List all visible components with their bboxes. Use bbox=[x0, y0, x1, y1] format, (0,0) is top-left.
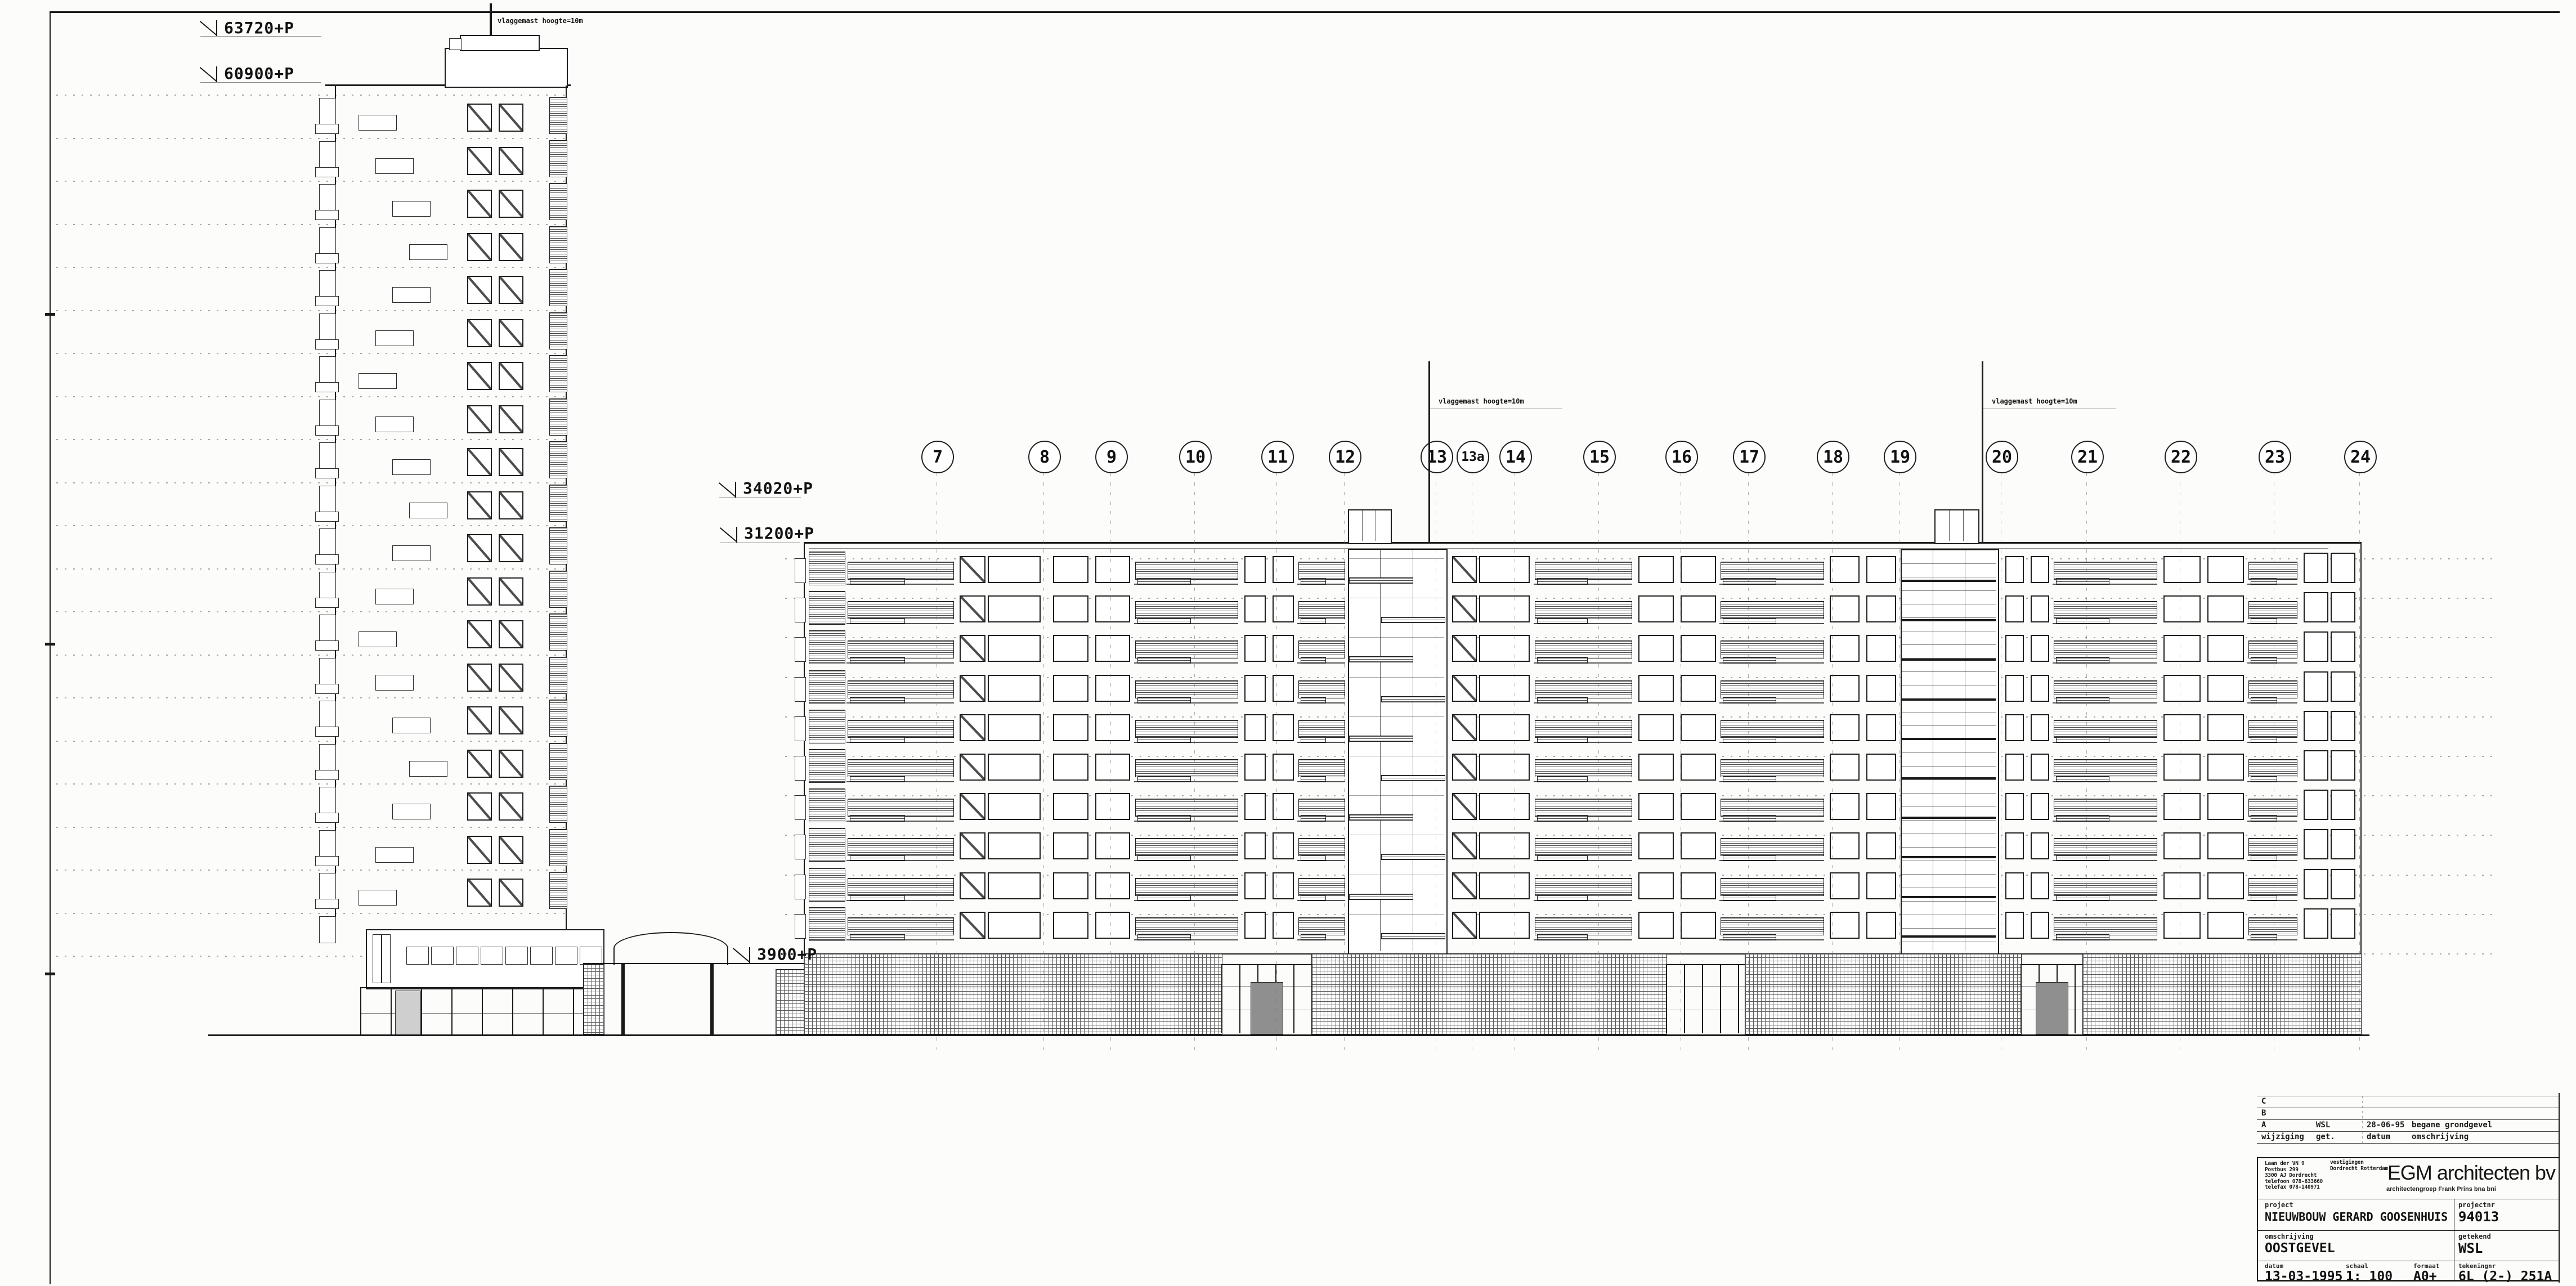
entrance-mullion bbox=[2021, 964, 2022, 1033]
stair-core-slab bbox=[1902, 856, 1996, 858]
stair-core-mullion bbox=[1413, 550, 1413, 951]
balcony-slab bbox=[1297, 742, 1345, 743]
casement-window bbox=[1452, 556, 1477, 583]
tower-window bbox=[467, 836, 492, 864]
revision-column-divider bbox=[2362, 1096, 2363, 1143]
flag-mast bbox=[1982, 361, 1983, 542]
window bbox=[2005, 832, 2024, 859]
window bbox=[1273, 556, 1294, 583]
casement-window bbox=[960, 714, 985, 741]
tower-window bbox=[499, 405, 523, 433]
balcony-slab bbox=[1719, 821, 1824, 822]
titleblock-border-left bbox=[2257, 1157, 2258, 1281]
tower-balcony bbox=[549, 355, 567, 392]
window bbox=[2163, 635, 2201, 662]
firm-name: EGM architecten bv bbox=[2387, 1161, 2555, 1185]
balcony-railing bbox=[1135, 759, 1238, 777]
stair-core-line bbox=[1349, 914, 1444, 915]
grid-bubble: 9 bbox=[1095, 441, 1128, 473]
balcony-railing bbox=[2054, 640, 2157, 658]
annex-window bbox=[431, 947, 454, 965]
window bbox=[1681, 714, 1716, 741]
balcony-railing bbox=[1535, 720, 1632, 738]
window bbox=[1830, 714, 1860, 741]
end-balcony bbox=[809, 907, 845, 941]
window bbox=[1681, 832, 1716, 859]
balcony-slab bbox=[2053, 900, 2157, 901]
window bbox=[1830, 595, 1860, 622]
tower-edge-box bbox=[319, 873, 336, 900]
projectnr-value: 94013 bbox=[2458, 1209, 2499, 1225]
tower-window bbox=[467, 276, 492, 304]
fold-mark bbox=[45, 313, 55, 316]
window bbox=[1830, 675, 1860, 702]
tower-edge-box bbox=[319, 916, 336, 943]
tower-edge-box bbox=[319, 356, 336, 383]
grid-line bbox=[1899, 473, 1899, 1051]
balcony-slab bbox=[1297, 623, 1345, 624]
level-line bbox=[56, 95, 571, 96]
entrance-mullion bbox=[1738, 964, 1739, 1033]
window bbox=[1479, 556, 1530, 583]
annex-pier bbox=[382, 934, 391, 983]
tower-edge-box-base bbox=[315, 512, 339, 522]
balcony-slab bbox=[2053, 781, 2157, 782]
window bbox=[2207, 595, 2245, 622]
balcony-slab bbox=[1534, 584, 1632, 585]
tower-window bbox=[467, 491, 492, 519]
balcony-slab bbox=[2247, 860, 2297, 861]
balcony-slab bbox=[1719, 860, 1824, 861]
balcony-railing bbox=[2248, 680, 2297, 698]
balcony-railing bbox=[1298, 680, 1345, 698]
entrance-mullion bbox=[1684, 964, 1685, 1033]
grid-bubble: 19 bbox=[1884, 441, 1916, 473]
window bbox=[988, 912, 1041, 939]
window bbox=[2005, 754, 2024, 781]
grid-line bbox=[937, 473, 937, 1051]
balcony-railing bbox=[2054, 601, 2157, 619]
window bbox=[2031, 872, 2049, 899]
grid-line bbox=[1832, 473, 1833, 1051]
tower-edge-box-base bbox=[315, 684, 339, 694]
balcony-railing bbox=[1298, 799, 1345, 817]
level-marker-arrow bbox=[720, 527, 737, 543]
grid-bubble: 16 bbox=[1665, 441, 1698, 473]
balcony-slab bbox=[2247, 781, 2297, 782]
balcony-slab bbox=[1134, 623, 1238, 624]
tower-balcony bbox=[549, 183, 567, 220]
grid-line bbox=[1344, 473, 1345, 1051]
balcony-slab bbox=[1297, 821, 1345, 822]
tower-edge-box bbox=[319, 442, 336, 469]
end-balcony bbox=[809, 749, 845, 783]
level-line bbox=[56, 741, 571, 742]
annex-window bbox=[406, 947, 429, 965]
omschrijving-label: omschrijving bbox=[2265, 1233, 2314, 1240]
balcony-railing bbox=[848, 640, 954, 658]
square-window bbox=[2331, 711, 2355, 741]
tower-edge-box-base bbox=[315, 598, 339, 608]
tower-edge-box bbox=[319, 313, 336, 340]
window bbox=[2163, 754, 2201, 781]
window bbox=[2031, 556, 2049, 583]
window bbox=[988, 872, 1041, 899]
balcony-railing bbox=[1535, 759, 1632, 777]
square-window bbox=[2331, 908, 2355, 939]
window bbox=[2163, 595, 2201, 622]
balcony-railing bbox=[1135, 680, 1238, 698]
revision-letter: C bbox=[2261, 1097, 2266, 1106]
window bbox=[988, 675, 1041, 702]
level-marker-arrow bbox=[200, 21, 217, 36]
balcony-railing bbox=[848, 917, 954, 935]
balcony-railing bbox=[1535, 917, 1632, 935]
tower-flag-mast bbox=[490, 3, 492, 36]
level-line bbox=[56, 439, 571, 440]
balcony-railing bbox=[2248, 720, 2297, 738]
balcony-railing bbox=[1721, 720, 1824, 738]
getekend-label: getekend bbox=[2458, 1233, 2491, 1240]
stair-landing bbox=[1349, 736, 1413, 742]
balcony-slab bbox=[2247, 900, 2297, 901]
balcony-slab bbox=[1534, 702, 1632, 704]
square-window bbox=[2331, 592, 2355, 622]
window bbox=[988, 793, 1041, 820]
balcony-slab bbox=[1719, 702, 1824, 704]
storefront-mullion bbox=[391, 987, 392, 1034]
roof-house-mullion bbox=[1376, 510, 1376, 541]
window bbox=[1273, 595, 1294, 622]
window bbox=[2005, 912, 2024, 939]
window bbox=[2005, 675, 2024, 702]
title-block: vestigingen Dordrecht Rotterdam EGM arch… bbox=[2257, 1096, 2560, 1281]
tower-edge-box-base bbox=[315, 899, 339, 909]
block-edge-box bbox=[795, 756, 806, 781]
window bbox=[1638, 872, 1674, 899]
stair-core-line bbox=[1349, 795, 1444, 796]
tower-slit-window bbox=[375, 675, 414, 691]
casement-window bbox=[1452, 675, 1477, 702]
window bbox=[1830, 912, 1860, 939]
tower-balcony bbox=[549, 786, 567, 823]
window bbox=[2207, 793, 2245, 820]
tower-window bbox=[467, 448, 492, 476]
level-marker: 31200+P bbox=[744, 524, 814, 543]
window bbox=[1244, 832, 1266, 859]
stair-core-slab bbox=[1902, 698, 1996, 701]
balcony-railing bbox=[1135, 838, 1238, 856]
project-label: project bbox=[2265, 1201, 2293, 1209]
window bbox=[1273, 912, 1294, 939]
balcony-railing bbox=[1721, 799, 1824, 817]
level-marker-line bbox=[719, 498, 801, 498]
balcony-slab bbox=[2053, 662, 2157, 664]
balcony-railing bbox=[2248, 759, 2297, 777]
tower-window bbox=[467, 147, 492, 175]
window bbox=[1479, 793, 1530, 820]
tower-balcony bbox=[549, 226, 567, 263]
balcony-railing bbox=[1298, 917, 1345, 935]
balcony-slab bbox=[2247, 821, 2297, 822]
balcony-railing bbox=[1721, 838, 1824, 856]
balcony-railing bbox=[1135, 640, 1238, 658]
entrance-mullion bbox=[1702, 964, 1703, 1033]
tower-window bbox=[467, 405, 492, 433]
casement-window bbox=[1452, 595, 1477, 622]
window bbox=[1830, 635, 1860, 662]
block-edge-box bbox=[795, 835, 806, 859]
balcony-railing bbox=[1721, 562, 1824, 580]
balcony-slab bbox=[2247, 702, 2297, 704]
window bbox=[2207, 675, 2245, 702]
window bbox=[1244, 912, 1266, 939]
tower-edge-box bbox=[319, 572, 336, 599]
window bbox=[1866, 754, 1896, 781]
end-balcony bbox=[809, 788, 845, 822]
balcony-slab bbox=[2247, 662, 2297, 664]
window bbox=[1053, 595, 1088, 622]
balcony-slab bbox=[846, 860, 954, 861]
window bbox=[2163, 793, 2201, 820]
balcony-railing bbox=[1298, 720, 1345, 738]
tower-window bbox=[499, 534, 523, 562]
window bbox=[1479, 754, 1530, 781]
window bbox=[2005, 793, 2024, 820]
window bbox=[1681, 793, 1716, 820]
window bbox=[1479, 635, 1530, 662]
square-window bbox=[2304, 908, 2328, 939]
roof-house-mullion bbox=[1949, 510, 1950, 541]
block-edge-box bbox=[795, 914, 806, 939]
casement-window bbox=[960, 675, 985, 702]
level-marker: 60900+P bbox=[224, 64, 294, 83]
omschrijving-value: OOSTGEVEL bbox=[2265, 1241, 2335, 1256]
window bbox=[988, 714, 1041, 741]
balcony-slab bbox=[1719, 662, 1824, 664]
balcony-slab bbox=[1534, 821, 1632, 822]
block-edge-box bbox=[795, 598, 806, 622]
window bbox=[1681, 556, 1716, 583]
storefront-mullion bbox=[543, 987, 544, 1034]
balcony-slab bbox=[1297, 860, 1345, 861]
stair-core-mullion bbox=[1380, 550, 1381, 951]
revision-divider bbox=[2257, 1143, 2560, 1144]
window bbox=[1479, 872, 1530, 899]
balcony-slab bbox=[1134, 742, 1238, 743]
balcony-railing bbox=[1721, 917, 1824, 935]
stair-landing bbox=[1349, 894, 1413, 900]
titleblock-column-divider bbox=[2454, 1199, 2454, 1280]
window bbox=[2207, 635, 2245, 662]
tekeningnr-value: 6L (2-) 251A bbox=[2458, 1269, 2552, 1284]
entrance-mullion bbox=[2075, 964, 2076, 1033]
grid-bubble: 13a bbox=[1457, 441, 1489, 473]
tower-balcony bbox=[549, 485, 567, 522]
window bbox=[1638, 793, 1674, 820]
revision-divider bbox=[2257, 1108, 2560, 1108]
balcony-slab bbox=[1719, 939, 1824, 940]
window bbox=[1866, 714, 1896, 741]
grid-bubble: 15 bbox=[1583, 441, 1616, 473]
balcony-slab bbox=[2053, 623, 2157, 624]
entrance-mullion bbox=[1239, 964, 1240, 1033]
balcony-railing bbox=[2054, 838, 2157, 856]
balcony-slab bbox=[1297, 662, 1345, 664]
grid-bubble: 20 bbox=[1986, 441, 2018, 473]
tower-window bbox=[467, 620, 492, 648]
balcony-railing bbox=[848, 720, 954, 738]
tower-slit-window bbox=[375, 416, 414, 432]
stair-landing bbox=[1349, 814, 1413, 821]
window bbox=[1638, 912, 1674, 939]
grid-bubble: 17 bbox=[1733, 441, 1766, 473]
stair-core-line bbox=[1349, 716, 1444, 717]
balcony-railing bbox=[1135, 601, 1238, 619]
casement-window bbox=[1452, 714, 1477, 741]
storefront-mullion bbox=[360, 987, 361, 1034]
balcony-slab bbox=[2053, 821, 2157, 822]
window bbox=[1244, 635, 1266, 662]
level-line bbox=[56, 482, 571, 483]
balcony-railing bbox=[1298, 640, 1345, 658]
tower-edge-box bbox=[319, 486, 336, 513]
window bbox=[1830, 793, 1860, 820]
window bbox=[2005, 714, 2024, 741]
balcony-slab bbox=[1297, 584, 1345, 585]
entrance-head bbox=[1666, 964, 1745, 965]
masonry-plinth bbox=[1745, 953, 2022, 1034]
revision-omschrijving: begane grondgevel bbox=[2412, 1121, 2492, 1130]
stair-landing bbox=[1349, 577, 1413, 584]
balcony-railing bbox=[2054, 878, 2157, 896]
fold-mark bbox=[45, 973, 55, 975]
flag-note: vlaggemast hoogte=10m bbox=[498, 17, 583, 25]
window bbox=[1681, 635, 1716, 662]
window bbox=[1053, 714, 1088, 741]
end-balcony bbox=[809, 868, 845, 902]
flag-note: vlaggemast hoogte=10m bbox=[1439, 397, 1524, 405]
window bbox=[1053, 556, 1088, 583]
flag-note: vlaggemast hoogte=10m bbox=[1992, 397, 2077, 405]
balcony-railing bbox=[1298, 601, 1345, 619]
project-value: NIEUWBOUW GERARD GOOSENHUIS bbox=[2265, 1210, 2448, 1224]
window bbox=[1681, 675, 1716, 702]
window bbox=[1053, 872, 1088, 899]
balcony-railing bbox=[1135, 917, 1238, 935]
revision-header-datum: datum bbox=[2367, 1132, 2390, 1141]
sheet-border-right bbox=[2559, 1093, 2560, 1283]
end-balcony bbox=[809, 828, 845, 862]
window bbox=[1681, 912, 1716, 939]
grid-line bbox=[1194, 473, 1195, 1051]
entrance-door bbox=[2036, 982, 2068, 1034]
block-roof bbox=[804, 542, 2362, 544]
casement-window bbox=[1452, 793, 1477, 820]
revision-header-get: get. bbox=[2316, 1132, 2335, 1141]
balcony-railing bbox=[848, 680, 954, 698]
balcony-slab bbox=[2247, 584, 2297, 585]
window bbox=[1638, 832, 1674, 859]
balcony-railing bbox=[1298, 878, 1345, 896]
window bbox=[1830, 832, 1860, 859]
tower-roof-house bbox=[460, 35, 540, 51]
block-edge-box bbox=[795, 795, 806, 820]
plinth-joint bbox=[804, 986, 2360, 987]
entrance-head bbox=[2021, 964, 2082, 965]
tower-window bbox=[467, 190, 492, 218]
sheet-border-left bbox=[50, 11, 51, 1284]
canopy-arch bbox=[613, 932, 728, 965]
tower-window bbox=[467, 534, 492, 562]
annex-window bbox=[505, 947, 528, 965]
grid-bubble: 23 bbox=[2259, 441, 2291, 473]
tower-edge-box bbox=[319, 701, 336, 728]
tower-edge-box-base bbox=[315, 727, 339, 737]
window bbox=[1866, 595, 1896, 622]
balcony-railing bbox=[1135, 799, 1238, 817]
window bbox=[1866, 832, 1896, 859]
level-marker: 63720+P bbox=[224, 19, 294, 37]
stair-core-glazing bbox=[1902, 550, 1996, 951]
balcony-slab bbox=[846, 662, 954, 664]
block-edge-box bbox=[795, 637, 806, 662]
balcony-railing bbox=[1721, 878, 1824, 896]
flag-note-line bbox=[1982, 409, 2116, 409]
level-marker-line bbox=[720, 543, 800, 543]
grid-bubble: 11 bbox=[1261, 441, 1294, 473]
stair-core-slab bbox=[1902, 619, 1996, 621]
annex-pier bbox=[373, 934, 382, 983]
block-edge-box bbox=[795, 677, 806, 702]
balcony-slab bbox=[1719, 781, 1824, 782]
grid-line bbox=[1598, 473, 1599, 1051]
window bbox=[1273, 872, 1294, 899]
balcony-railing bbox=[848, 878, 954, 896]
window bbox=[2163, 832, 2201, 859]
window bbox=[1095, 595, 1131, 622]
balcony-railing bbox=[1721, 640, 1824, 658]
balcony-slab bbox=[1297, 939, 1345, 940]
tower-edge-box bbox=[319, 787, 336, 814]
balcony-railing bbox=[2054, 562, 2157, 580]
square-window bbox=[2304, 592, 2328, 622]
square-window bbox=[2331, 750, 2355, 781]
tower-window bbox=[467, 664, 492, 692]
balcony-railing bbox=[2248, 562, 2297, 580]
grid-bubble: 10 bbox=[1179, 441, 1212, 473]
tower-balcony bbox=[549, 829, 567, 866]
window bbox=[1681, 754, 1716, 781]
balcony-railing bbox=[1535, 838, 1632, 856]
square-window bbox=[2331, 869, 2355, 899]
tower-balcony bbox=[549, 140, 567, 177]
grid-bubble: 18 bbox=[1817, 441, 1849, 473]
tower-edge-box-base bbox=[315, 856, 339, 866]
window bbox=[1053, 754, 1088, 781]
canopy-column bbox=[621, 964, 625, 1034]
square-window bbox=[2304, 553, 2328, 583]
stair-core-line bbox=[1349, 875, 1444, 875]
balcony-slab bbox=[1134, 900, 1238, 901]
tower-balcony bbox=[549, 527, 567, 564]
tower-edge-box bbox=[319, 658, 336, 685]
tower-window bbox=[499, 491, 523, 519]
balcony-railing bbox=[1721, 759, 1824, 777]
casement-window bbox=[960, 793, 985, 820]
formaat-value: A0+ bbox=[2413, 1269, 2437, 1284]
tower-window bbox=[499, 879, 523, 907]
